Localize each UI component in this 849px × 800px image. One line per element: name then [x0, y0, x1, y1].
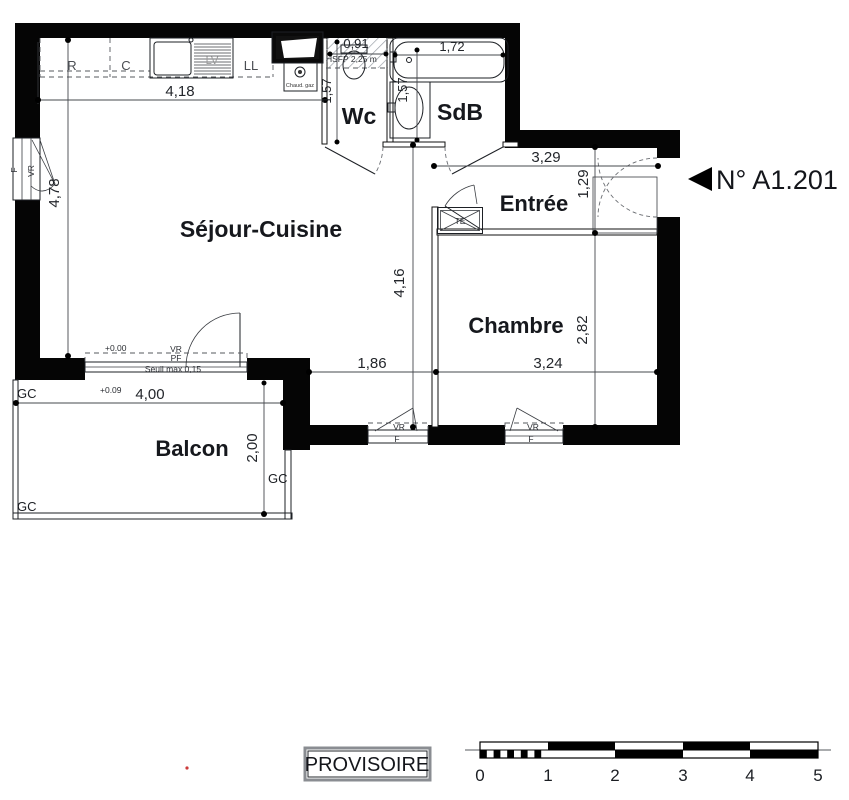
sink-bowl	[154, 42, 191, 75]
dim-window-offset: 1,86	[357, 355, 386, 372]
dim-balcon-depth: 2,00	[244, 433, 261, 462]
scale-tick-2: 2	[610, 766, 619, 785]
dim-sdb-depth: 1,57	[395, 77, 410, 102]
gas-boiler: Chaud. gaz	[284, 63, 317, 91]
dim-sejour-depth: 4,16	[391, 268, 408, 297]
unit-number: N° A1.201	[716, 165, 838, 195]
scale-tick-1: 1	[543, 766, 552, 785]
gc-label-1: GC	[17, 386, 37, 401]
scale-tick-3: 3	[678, 766, 687, 785]
level-notes: +0.00 +0.09	[100, 343, 127, 395]
w2-vr-label: VR	[527, 422, 539, 432]
w1-vr-label: VR	[393, 422, 405, 432]
hob-label: C	[121, 58, 130, 73]
floor-plan-drawing: R C LV LL Chaud. gaz HSFP 2,25 m	[0, 0, 849, 800]
gc-label-3: GC	[17, 499, 37, 514]
room-label-balcon: Balcon	[155, 436, 228, 461]
boiler-label: Chaud. gaz	[286, 83, 314, 89]
chambre-window-1: VR F	[368, 408, 428, 444]
wc-door	[325, 147, 383, 174]
room-label-chambre: Chambre	[468, 313, 563, 338]
faucet-icon	[189, 38, 193, 42]
red-mark	[185, 766, 188, 769]
left-arrow-icon	[688, 167, 712, 191]
scale-tick-5: 5	[813, 766, 822, 785]
left-window-vr-label: VR	[26, 165, 36, 177]
scale-tick-0: 0	[475, 766, 484, 785]
dim-entree-width: 3,29	[531, 149, 560, 166]
dim-wc-width: 0,91	[343, 36, 368, 51]
entry-door	[593, 158, 657, 233]
left-window-f-label: F	[9, 167, 19, 172]
gc-label-2: GC	[268, 471, 288, 486]
dim-wc-depth: 1,57	[319, 78, 334, 103]
floor-plan-sheet: R C LV LL Chaud. gaz HSFP 2,25 m	[0, 0, 849, 800]
seuil-note: Seuil max 0,15	[145, 364, 201, 374]
kitchen-counter: R C LV LL	[40, 38, 273, 78]
dim-chambre-height: 2,82	[574, 315, 591, 344]
w1-f-label: F	[394, 434, 399, 444]
closet-label: TE	[455, 216, 466, 226]
room-label-entree: Entrée	[500, 191, 568, 216]
room-labels: Séjour-Cuisine Wc SdB Entrée Chambre Bal…	[155, 99, 568, 461]
dim-kitchen-width: 4,18	[165, 83, 194, 100]
balcony-rail-bottom	[13, 513, 292, 519]
w2-f-label: F	[528, 434, 533, 444]
level-balcony: +0.09	[100, 385, 122, 395]
scale-tick-4: 4	[745, 766, 754, 785]
balcony-french-door	[186, 313, 240, 367]
sdb-door	[445, 147, 503, 174]
scale-bar: 0 1 2 3 4 5	[465, 742, 831, 785]
pf-label: PF	[171, 353, 182, 363]
dim-chambre-width: 3,24	[533, 355, 562, 372]
dim-sejour-height: 4,78	[46, 178, 63, 207]
chambre-window-2: VR F	[505, 408, 563, 444]
level-interior: +0.00	[105, 343, 127, 353]
status-stamp: PROVISOIRE	[305, 748, 430, 780]
room-label-sdb: SdB	[437, 99, 483, 125]
dim-entree-depth: 1,29	[575, 169, 592, 198]
dim-bath-length: 1,72	[439, 39, 464, 54]
status-text: PROVISOIRE	[305, 754, 429, 776]
fridge-label: R	[67, 58, 76, 73]
duct-box	[272, 32, 323, 63]
washer-label: LL	[244, 58, 258, 73]
unit-marker: N° A1.201	[688, 165, 838, 195]
dim-balcon-width: 4,00	[135, 386, 164, 403]
dishwasher-label: LV	[206, 55, 219, 67]
hsfp-note: HSFP 2,25 m	[326, 54, 377, 64]
room-label-wc: Wc	[342, 103, 377, 129]
room-label-sejour: Séjour-Cuisine	[180, 216, 342, 242]
